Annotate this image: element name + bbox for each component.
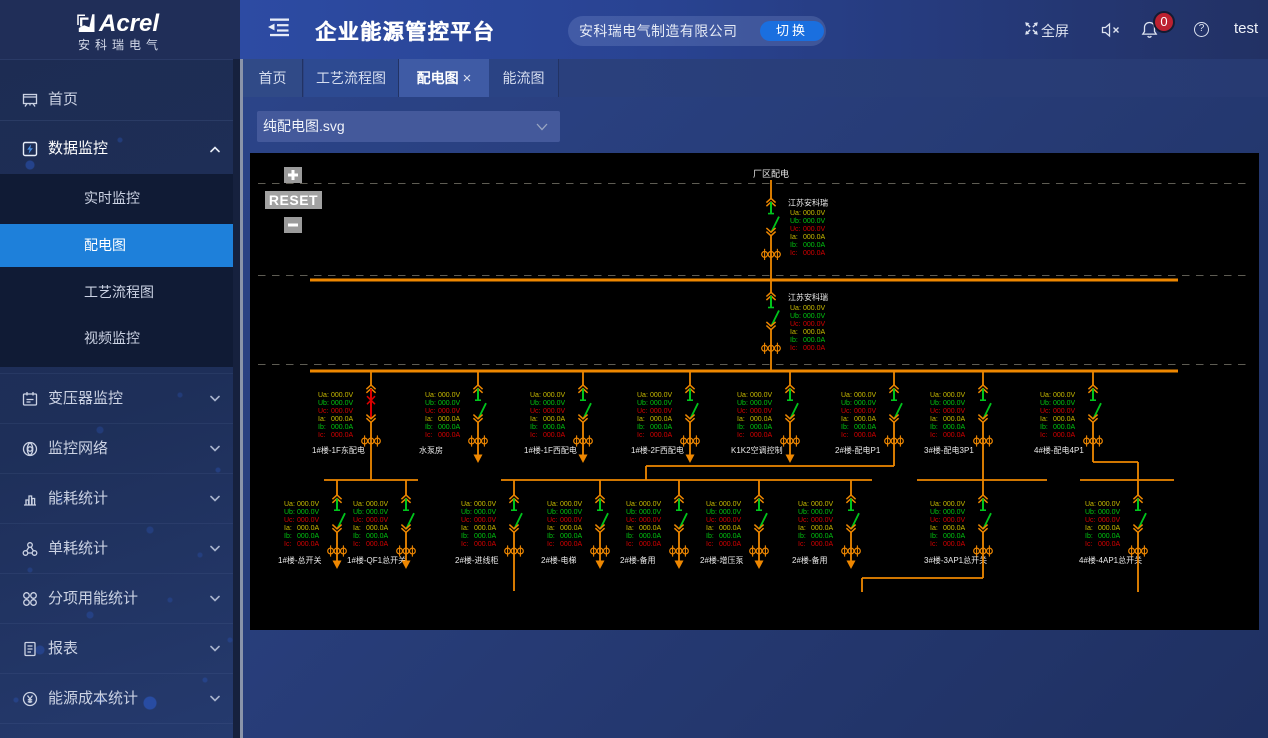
svg-text:000.0V: 000.0V xyxy=(438,400,461,407)
svg-text:000.0V: 000.0V xyxy=(543,400,566,407)
svg-text:000.0A: 000.0A xyxy=(366,533,389,540)
svg-text:Ic:: Ic: xyxy=(626,541,633,548)
svg-text:000.0V: 000.0V xyxy=(331,408,354,415)
svg-text:Ua:: Ua: xyxy=(798,501,809,508)
svg-text:000.0V: 000.0V xyxy=(943,408,966,415)
svg-text:000.0A: 000.0A xyxy=(438,416,461,423)
svg-text:K1K2空调控制: K1K2空调控制 xyxy=(731,445,783,455)
svg-text:000.0V: 000.0V xyxy=(811,509,834,516)
svg-text:000.0V: 000.0V xyxy=(719,501,742,508)
svg-text:Ub:: Ub: xyxy=(930,400,941,407)
svg-text:Uc:: Uc: xyxy=(930,408,941,415)
svg-text:000.0A: 000.0A xyxy=(331,424,354,431)
svg-text:Ia:: Ia: xyxy=(284,525,292,532)
svg-text:000.0V: 000.0V xyxy=(560,509,583,516)
svg-text:Ub:: Ub: xyxy=(626,509,637,516)
svg-text:Ub:: Ub: xyxy=(737,400,748,407)
svg-text:Ua:: Ua: xyxy=(547,501,558,508)
svg-text:000.0A: 000.0A xyxy=(297,541,320,548)
svg-text:Uc:: Uc: xyxy=(706,517,717,524)
svg-text:Ua:: Ua: xyxy=(930,392,941,399)
svg-text:Uc:: Uc: xyxy=(637,408,648,415)
svg-text:000.0A: 000.0A xyxy=(639,541,662,548)
svg-text:1#楼-1F西配电: 1#楼-1F西配电 xyxy=(524,445,577,455)
svg-text:000.0A: 000.0A xyxy=(650,424,673,431)
svg-text:000.0V: 000.0V xyxy=(560,517,583,524)
svg-text:Ia:: Ia: xyxy=(353,525,361,532)
svg-text:000.0A: 000.0A xyxy=(543,416,566,423)
svg-text:000.0A: 000.0A xyxy=(560,541,583,548)
svg-text:000.0V: 000.0V xyxy=(803,226,826,233)
svg-text:Ic:: Ic: xyxy=(425,432,432,439)
svg-text:Ic:: Ic: xyxy=(930,432,937,439)
svg-text:RESET: RESET xyxy=(269,192,318,208)
svg-text:2#楼-配电P1: 2#楼-配电P1 xyxy=(835,445,881,455)
svg-text:1#楼-2F西配电: 1#楼-2F西配电 xyxy=(631,445,684,455)
svg-text:000.0A: 000.0A xyxy=(474,533,497,540)
svg-text:000.0V: 000.0V xyxy=(331,392,354,399)
svg-text:Ub:: Ub: xyxy=(637,400,648,407)
svg-text:2#楼-进线柜: 2#楼-进线柜 xyxy=(455,555,499,565)
svg-text:Ib:: Ib: xyxy=(798,533,806,540)
svg-text:Ib:: Ib: xyxy=(737,424,745,431)
svg-text:Ua:: Ua: xyxy=(353,501,364,508)
svg-text:000.0A: 000.0A xyxy=(943,424,966,431)
svg-text:Ua:: Ua: xyxy=(318,392,329,399)
svg-text:000.0A: 000.0A xyxy=(750,424,773,431)
svg-text:Ib:: Ib: xyxy=(626,533,634,540)
svg-text:Ic:: Ic: xyxy=(841,432,848,439)
svg-text:000.0V: 000.0V xyxy=(943,509,966,516)
svg-text:Ib:: Ib: xyxy=(318,424,326,431)
svg-text:000.0V: 000.0V xyxy=(474,501,497,508)
svg-text:000.0A: 000.0A xyxy=(639,533,662,540)
svg-text:Ib:: Ib: xyxy=(930,424,938,431)
svg-text:Ib:: Ib: xyxy=(284,533,292,540)
svg-text:000.0V: 000.0V xyxy=(639,501,662,508)
svg-text:Ub:: Ub: xyxy=(790,313,801,320)
svg-text:000.0V: 000.0V xyxy=(297,509,320,516)
svg-text:000.0V: 000.0V xyxy=(943,501,966,508)
svg-text:Ic:: Ic: xyxy=(930,541,937,548)
svg-text:江苏安科瑞: 江苏安科瑞 xyxy=(788,292,828,302)
svg-text:Ia:: Ia: xyxy=(318,416,326,423)
svg-text:Ub:: Ub: xyxy=(706,509,717,516)
svg-text:000.0V: 000.0V xyxy=(803,218,826,225)
svg-text:000.0A: 000.0A xyxy=(854,424,877,431)
svg-text:Uc:: Uc: xyxy=(461,517,472,524)
svg-text:Ib:: Ib: xyxy=(547,533,555,540)
svg-text:Ia:: Ia: xyxy=(798,525,806,532)
svg-text:000.0A: 000.0A xyxy=(854,432,877,439)
svg-text:000.0A: 000.0A xyxy=(1098,541,1121,548)
svg-text:Ic:: Ic: xyxy=(547,541,554,548)
svg-text:000.0A: 000.0A xyxy=(719,525,742,532)
svg-text:000.0A: 000.0A xyxy=(811,541,834,548)
svg-text:Ia:: Ia: xyxy=(706,525,714,532)
svg-text:3#楼-配电3P1: 3#楼-配电3P1 xyxy=(924,445,974,455)
svg-text:000.0V: 000.0V xyxy=(543,392,566,399)
svg-text:Ib:: Ib: xyxy=(790,242,798,249)
svg-text:1#楼-1F东配电: 1#楼-1F东配电 xyxy=(312,445,365,455)
svg-text:Ia:: Ia: xyxy=(930,525,938,532)
svg-text:000.0A: 000.0A xyxy=(438,424,461,431)
svg-text:Uc:: Uc: xyxy=(1085,517,1096,524)
svg-text:4#楼-配电4P1: 4#楼-配电4P1 xyxy=(1034,445,1084,455)
svg-text:000.0A: 000.0A xyxy=(803,250,826,257)
svg-text:Ib:: Ib: xyxy=(930,533,938,540)
svg-text:000.0V: 000.0V xyxy=(943,400,966,407)
svg-text:Uc:: Uc: xyxy=(626,517,637,524)
svg-text:000.0A: 000.0A xyxy=(366,525,389,532)
svg-text:Ic:: Ic: xyxy=(1040,432,1047,439)
svg-text:Ua:: Ua: xyxy=(637,392,648,399)
svg-text:Uc:: Uc: xyxy=(1040,408,1051,415)
svg-text:000.0V: 000.0V xyxy=(803,313,826,320)
svg-text:000.0A: 000.0A xyxy=(650,416,673,423)
svg-text:Uc:: Uc: xyxy=(790,226,801,233)
svg-text:000.0A: 000.0A xyxy=(1053,432,1076,439)
svg-text:000.0A: 000.0A xyxy=(943,416,966,423)
svg-text:000.0V: 000.0V xyxy=(811,517,834,524)
svg-text:000.0V: 000.0V xyxy=(650,400,673,407)
svg-text:000.0V: 000.0V xyxy=(1098,517,1121,524)
svg-text:Ib:: Ib: xyxy=(461,533,469,540)
svg-text:Ia:: Ia: xyxy=(530,416,538,423)
svg-text:Ic:: Ic: xyxy=(790,250,797,257)
svg-text:Ub:: Ub: xyxy=(790,218,801,225)
svg-text:000.0A: 000.0A xyxy=(943,525,966,532)
svg-text:000.0A: 000.0A xyxy=(1098,533,1121,540)
svg-text:Ic:: Ic: xyxy=(1085,541,1092,548)
svg-text:Ib:: Ib: xyxy=(790,337,798,344)
svg-text:000.0V: 000.0V xyxy=(297,501,320,508)
svg-text:厂区配电: 厂区配电 xyxy=(753,168,789,179)
svg-text:000.0A: 000.0A xyxy=(1053,424,1076,431)
svg-text:000.0V: 000.0V xyxy=(750,408,773,415)
svg-text:000.0A: 000.0A xyxy=(474,541,497,548)
svg-text:Ua:: Ua: xyxy=(737,392,748,399)
svg-text:Ic:: Ic: xyxy=(737,432,744,439)
svg-text:Ib:: Ib: xyxy=(841,424,849,431)
svg-text:Ia:: Ia: xyxy=(547,525,555,532)
svg-text:000.0V: 000.0V xyxy=(719,509,742,516)
svg-text:2#楼-电梯: 2#楼-电梯 xyxy=(541,555,577,565)
svg-text:2#楼-增压泵: 2#楼-增压泵 xyxy=(700,555,744,565)
svg-text:000.0V: 000.0V xyxy=(1053,392,1076,399)
svg-text:000.0A: 000.0A xyxy=(943,533,966,540)
svg-text:000.0A: 000.0A xyxy=(438,432,461,439)
svg-text:000.0V: 000.0V xyxy=(943,517,966,524)
svg-text:000.0A: 000.0A xyxy=(943,432,966,439)
svg-text:Ia:: Ia: xyxy=(930,416,938,423)
svg-text:000.0V: 000.0V xyxy=(803,321,826,328)
svg-text:1#楼-QF1总开关: 1#楼-QF1总开关 xyxy=(347,555,406,565)
svg-text:Uc:: Uc: xyxy=(790,321,801,328)
svg-text:Ib:: Ib: xyxy=(1040,424,1048,431)
svg-text:Ia:: Ia: xyxy=(461,525,469,532)
svg-text:Ub:: Ub: xyxy=(284,509,295,516)
svg-text:000.0V: 000.0V xyxy=(297,517,320,524)
svg-text:Ua:: Ua: xyxy=(461,501,472,508)
svg-text:Ic:: Ic: xyxy=(790,345,797,352)
svg-text:Uc:: Uc: xyxy=(841,408,852,415)
svg-text:4#楼-4AP1总开关: 4#楼-4AP1总开关 xyxy=(1079,555,1142,565)
svg-text:000.0A: 000.0A xyxy=(650,432,673,439)
svg-text:000.0A: 000.0A xyxy=(854,416,877,423)
svg-text:000.0V: 000.0V xyxy=(366,509,389,516)
svg-text:1#楼-总开关: 1#楼-总开关 xyxy=(278,555,322,565)
svg-text:Ic:: Ic: xyxy=(706,541,713,548)
svg-text:Ia:: Ia: xyxy=(637,416,645,423)
svg-text:Ub:: Ub: xyxy=(530,400,541,407)
svg-text:Ia:: Ia: xyxy=(1040,416,1048,423)
svg-text:000.0V: 000.0V xyxy=(650,408,673,415)
svg-text:Uc:: Uc: xyxy=(530,408,541,415)
svg-text:Ib:: Ib: xyxy=(353,533,361,540)
svg-text:000.0A: 000.0A xyxy=(297,533,320,540)
svg-text:Ia:: Ia: xyxy=(737,416,745,423)
svg-text:000.0V: 000.0V xyxy=(750,400,773,407)
svg-text:Ic:: Ic: xyxy=(637,432,644,439)
svg-text:000.0V: 000.0V xyxy=(543,408,566,415)
svg-text:Ub:: Ub: xyxy=(547,509,558,516)
svg-text:Ib:: Ib: xyxy=(1085,533,1093,540)
svg-text:000.0V: 000.0V xyxy=(811,501,834,508)
svg-text:Ua:: Ua: xyxy=(1040,392,1051,399)
svg-text:000.0V: 000.0V xyxy=(438,392,461,399)
svg-text:Ua:: Ua: xyxy=(706,501,717,508)
svg-text:000.0A: 000.0A xyxy=(331,432,354,439)
svg-text:000.0V: 000.0V xyxy=(639,517,662,524)
svg-text:000.0V: 000.0V xyxy=(750,392,773,399)
svg-text:Uc:: Uc: xyxy=(353,517,364,524)
svg-text:Ia:: Ia: xyxy=(841,416,849,423)
svg-text:Uc:: Uc: xyxy=(284,517,295,524)
svg-text:江苏安科瑞: 江苏安科瑞 xyxy=(788,198,828,208)
svg-text:000.0V: 000.0V xyxy=(474,517,497,524)
svg-text:Ub:: Ub: xyxy=(930,509,941,516)
svg-text:Ib:: Ib: xyxy=(637,424,645,431)
svg-text:000.0A: 000.0A xyxy=(750,416,773,423)
svg-text:000.0A: 000.0A xyxy=(719,541,742,548)
svg-text:Ic:: Ic: xyxy=(318,432,325,439)
svg-text:Ub:: Ub: xyxy=(1085,509,1096,516)
svg-text:000.0A: 000.0A xyxy=(474,525,497,532)
svg-text:000.0A: 000.0A xyxy=(1053,416,1076,423)
svg-text:Ib:: Ib: xyxy=(530,424,538,431)
svg-text:000.0A: 000.0A xyxy=(811,533,834,540)
svg-text:000.0A: 000.0A xyxy=(943,541,966,548)
svg-text:000.0V: 000.0V xyxy=(803,305,826,312)
svg-text:Ua:: Ua: xyxy=(790,305,801,312)
svg-text:000.0A: 000.0A xyxy=(719,533,742,540)
svg-text:000.0A: 000.0A xyxy=(366,541,389,548)
svg-text:000.0V: 000.0V xyxy=(1053,408,1076,415)
svg-text:Ua:: Ua: xyxy=(284,501,295,508)
svg-text:Ua:: Ua: xyxy=(626,501,637,508)
svg-text:Ic:: Ic: xyxy=(353,541,360,548)
svg-text:000.0A: 000.0A xyxy=(803,337,826,344)
svg-text:000.0A: 000.0A xyxy=(543,432,566,439)
svg-text:Ia:: Ia: xyxy=(790,234,798,241)
svg-text:Ua:: Ua: xyxy=(790,210,801,217)
svg-text:000.0V: 000.0V xyxy=(854,392,877,399)
svg-text:Uc:: Uc: xyxy=(798,517,809,524)
svg-text:Ic:: Ic: xyxy=(798,541,805,548)
svg-text:000.0A: 000.0A xyxy=(750,432,773,439)
svg-text:000.0V: 000.0V xyxy=(854,400,877,407)
svg-text:Ua:: Ua: xyxy=(930,501,941,508)
svg-text:Ia:: Ia: xyxy=(1085,525,1093,532)
svg-text:Ua:: Ua: xyxy=(530,392,541,399)
svg-text:Ic:: Ic: xyxy=(461,541,468,548)
svg-text:Ic:: Ic: xyxy=(530,432,537,439)
svg-text:Ub:: Ub: xyxy=(798,509,809,516)
svg-text:000.0V: 000.0V xyxy=(1098,501,1121,508)
svg-text:000.0V: 000.0V xyxy=(560,501,583,508)
svg-text:000.0V: 000.0V xyxy=(803,210,826,217)
svg-text:000.0A: 000.0A xyxy=(803,329,826,336)
svg-text:000.0V: 000.0V xyxy=(639,509,662,516)
svg-text:000.0A: 000.0A xyxy=(811,525,834,532)
svg-text:Ub:: Ub: xyxy=(1040,400,1051,407)
svg-text:000.0V: 000.0V xyxy=(854,408,877,415)
svg-text:000.0A: 000.0A xyxy=(331,416,354,423)
svg-text:2#楼-备用: 2#楼-备用 xyxy=(620,555,656,565)
svg-text:Uc:: Uc: xyxy=(930,517,941,524)
svg-text:Uc:: Uc: xyxy=(425,408,436,415)
svg-text:Ub:: Ub: xyxy=(353,509,364,516)
svg-text:Ib:: Ib: xyxy=(425,424,433,431)
svg-text:Ia:: Ia: xyxy=(626,525,634,532)
svg-text:Uc:: Uc: xyxy=(318,408,329,415)
svg-text:000.0V: 000.0V xyxy=(719,517,742,524)
svg-text:000.0V: 000.0V xyxy=(331,400,354,407)
svg-text:Ub:: Ub: xyxy=(841,400,852,407)
svg-text:Ub:: Ub: xyxy=(461,509,472,516)
svg-text:Ua:: Ua: xyxy=(841,392,852,399)
svg-text:Ua:: Ua: xyxy=(1085,501,1096,508)
svg-text:000.0A: 000.0A xyxy=(560,525,583,532)
svg-text:Ub:: Ub: xyxy=(425,400,436,407)
svg-text:000.0V: 000.0V xyxy=(438,408,461,415)
svg-text:Ic:: Ic: xyxy=(284,541,291,548)
svg-text:000.0V: 000.0V xyxy=(943,392,966,399)
svg-text:000.0V: 000.0V xyxy=(1053,400,1076,407)
svg-text:3#楼-3AP1总开关: 3#楼-3AP1总开关 xyxy=(924,555,987,565)
svg-text:000.0A: 000.0A xyxy=(297,525,320,532)
svg-text:Ua:: Ua: xyxy=(425,392,436,399)
svg-text:Uc:: Uc: xyxy=(737,408,748,415)
svg-text:000.0A: 000.0A xyxy=(803,242,826,249)
svg-text:000.0V: 000.0V xyxy=(366,501,389,508)
svg-text:000.0A: 000.0A xyxy=(543,424,566,431)
svg-text:Ib:: Ib: xyxy=(706,533,714,540)
svg-text:000.0A: 000.0A xyxy=(639,525,662,532)
svg-text:000.0V: 000.0V xyxy=(1098,509,1121,516)
svg-text:000.0A: 000.0A xyxy=(1098,525,1121,532)
svg-text:水泵房: 水泵房 xyxy=(419,445,443,455)
svg-text:2#楼-备用: 2#楼-备用 xyxy=(792,555,828,565)
svg-text:000.0A: 000.0A xyxy=(803,234,826,241)
svg-text:000.0V: 000.0V xyxy=(650,392,673,399)
svg-text:Uc:: Uc: xyxy=(547,517,558,524)
svg-text:000.0A: 000.0A xyxy=(803,345,826,352)
svg-text:000.0V: 000.0V xyxy=(474,509,497,516)
svg-text:Ub:: Ub: xyxy=(318,400,329,407)
svg-text:000.0A: 000.0A xyxy=(560,533,583,540)
svg-text:Ia:: Ia: xyxy=(425,416,433,423)
svg-text:000.0V: 000.0V xyxy=(366,517,389,524)
svg-text:Ia:: Ia: xyxy=(790,329,798,336)
